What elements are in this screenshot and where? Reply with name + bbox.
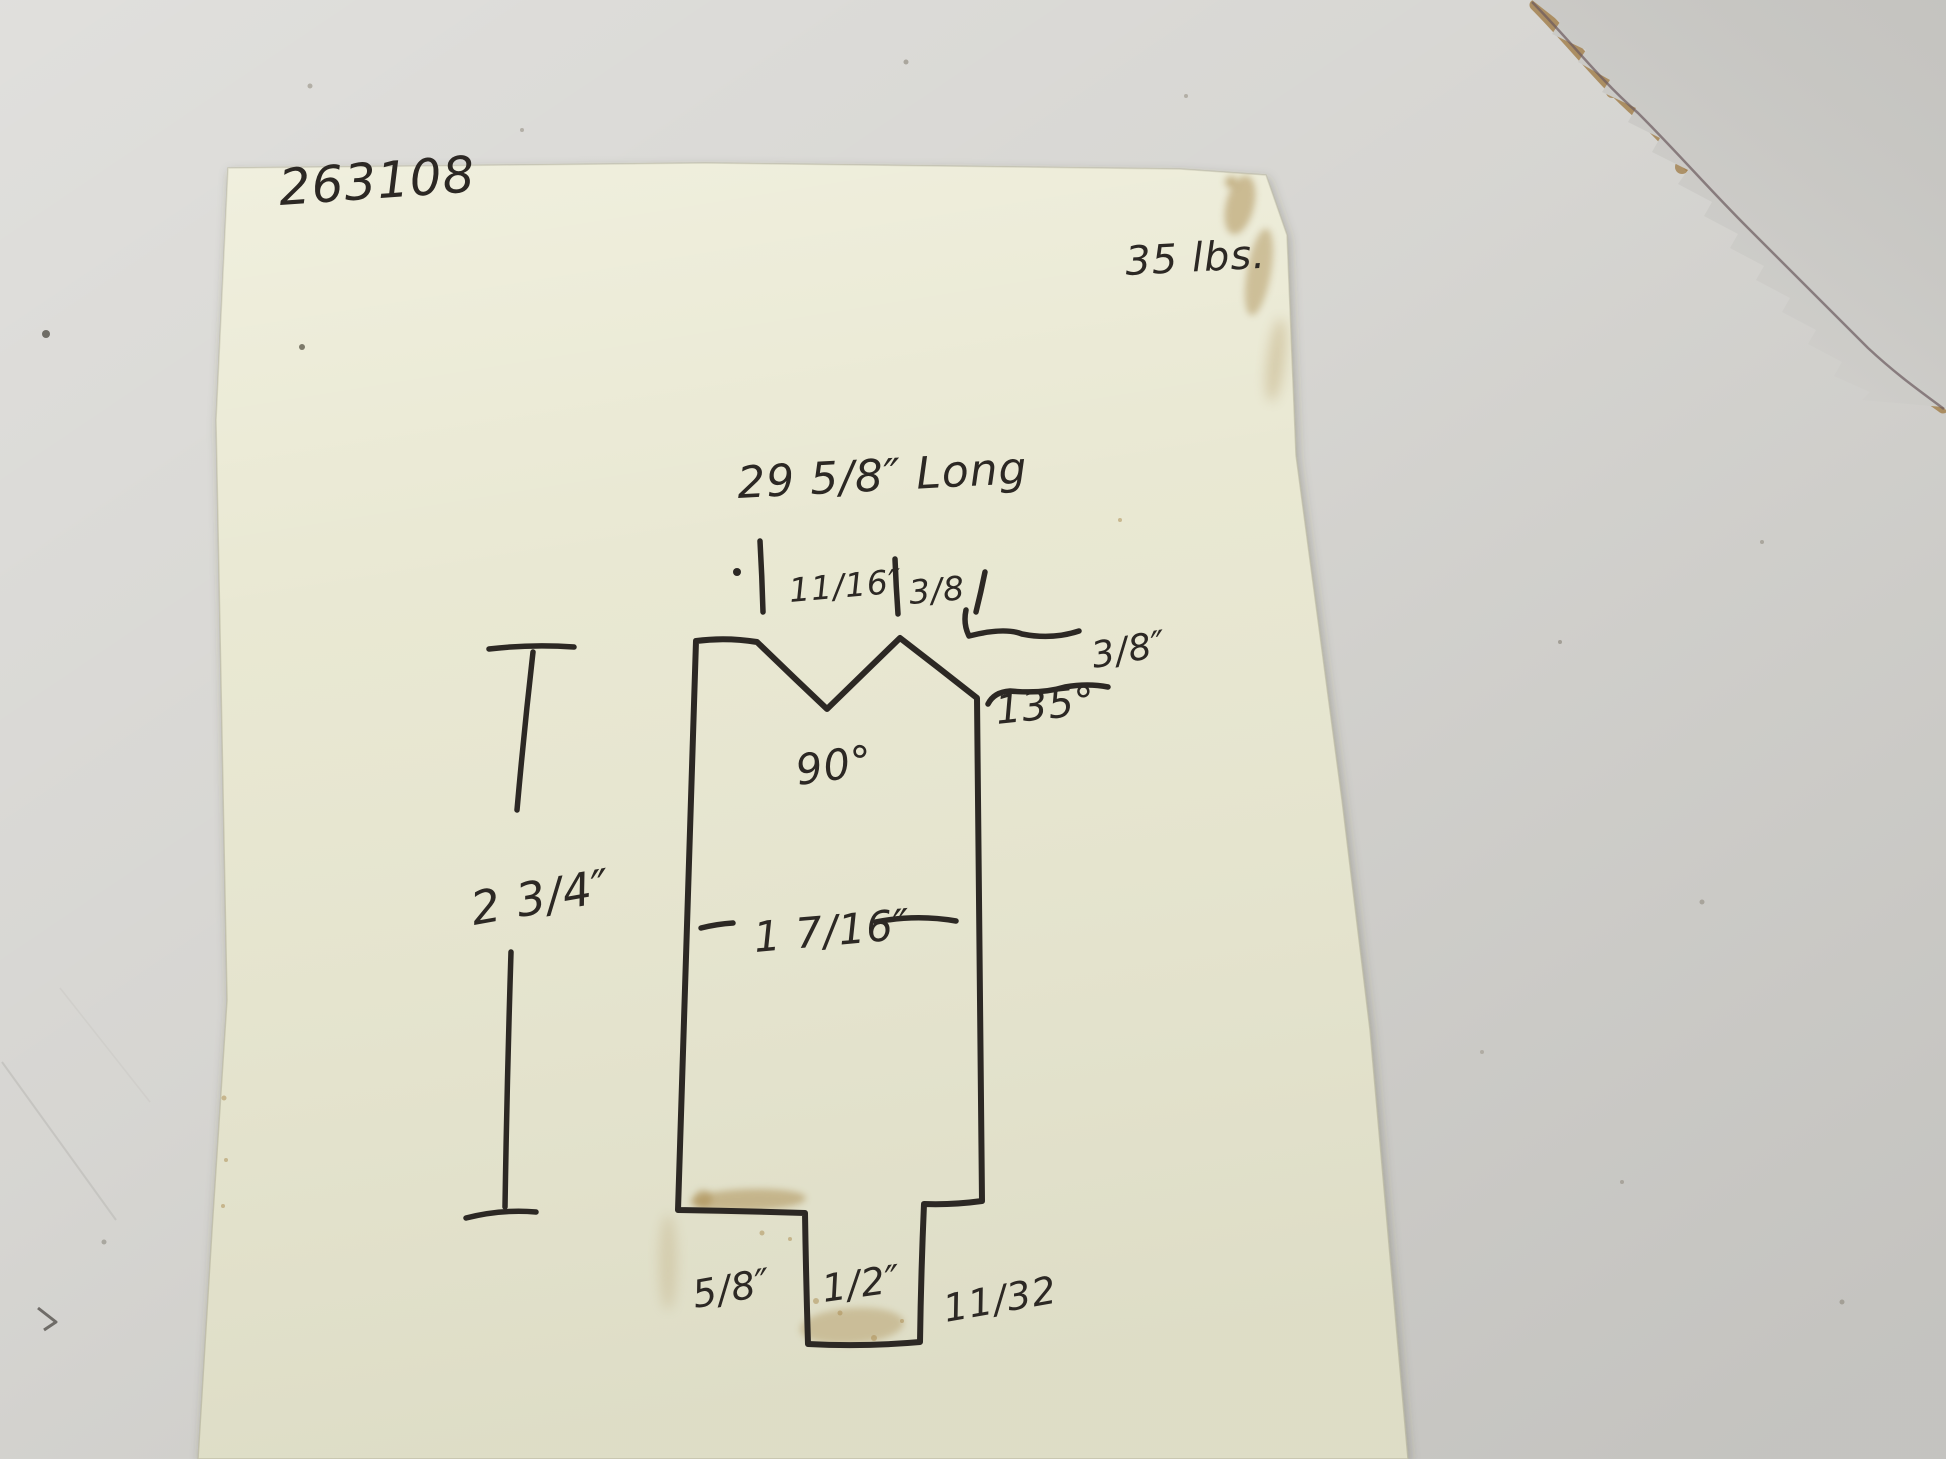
weight-label: 35 lbs. (1124, 232, 1267, 285)
notch-right-width-label: 3/8 (907, 568, 966, 612)
photo-canvas: 263108 35 lbs. 29 5/8″ Long 11/16″ 3/8 3… (0, 0, 1946, 1459)
height-dim-top-tick (489, 646, 574, 649)
photo-stage: 263108 35 lbs. 29 5/8″ Long 11/16″ 3/8 3… (0, 0, 1946, 1459)
notch-dim-dot (733, 568, 741, 576)
notch-dim-tick-left (760, 541, 763, 612)
paper-speck (299, 344, 305, 350)
